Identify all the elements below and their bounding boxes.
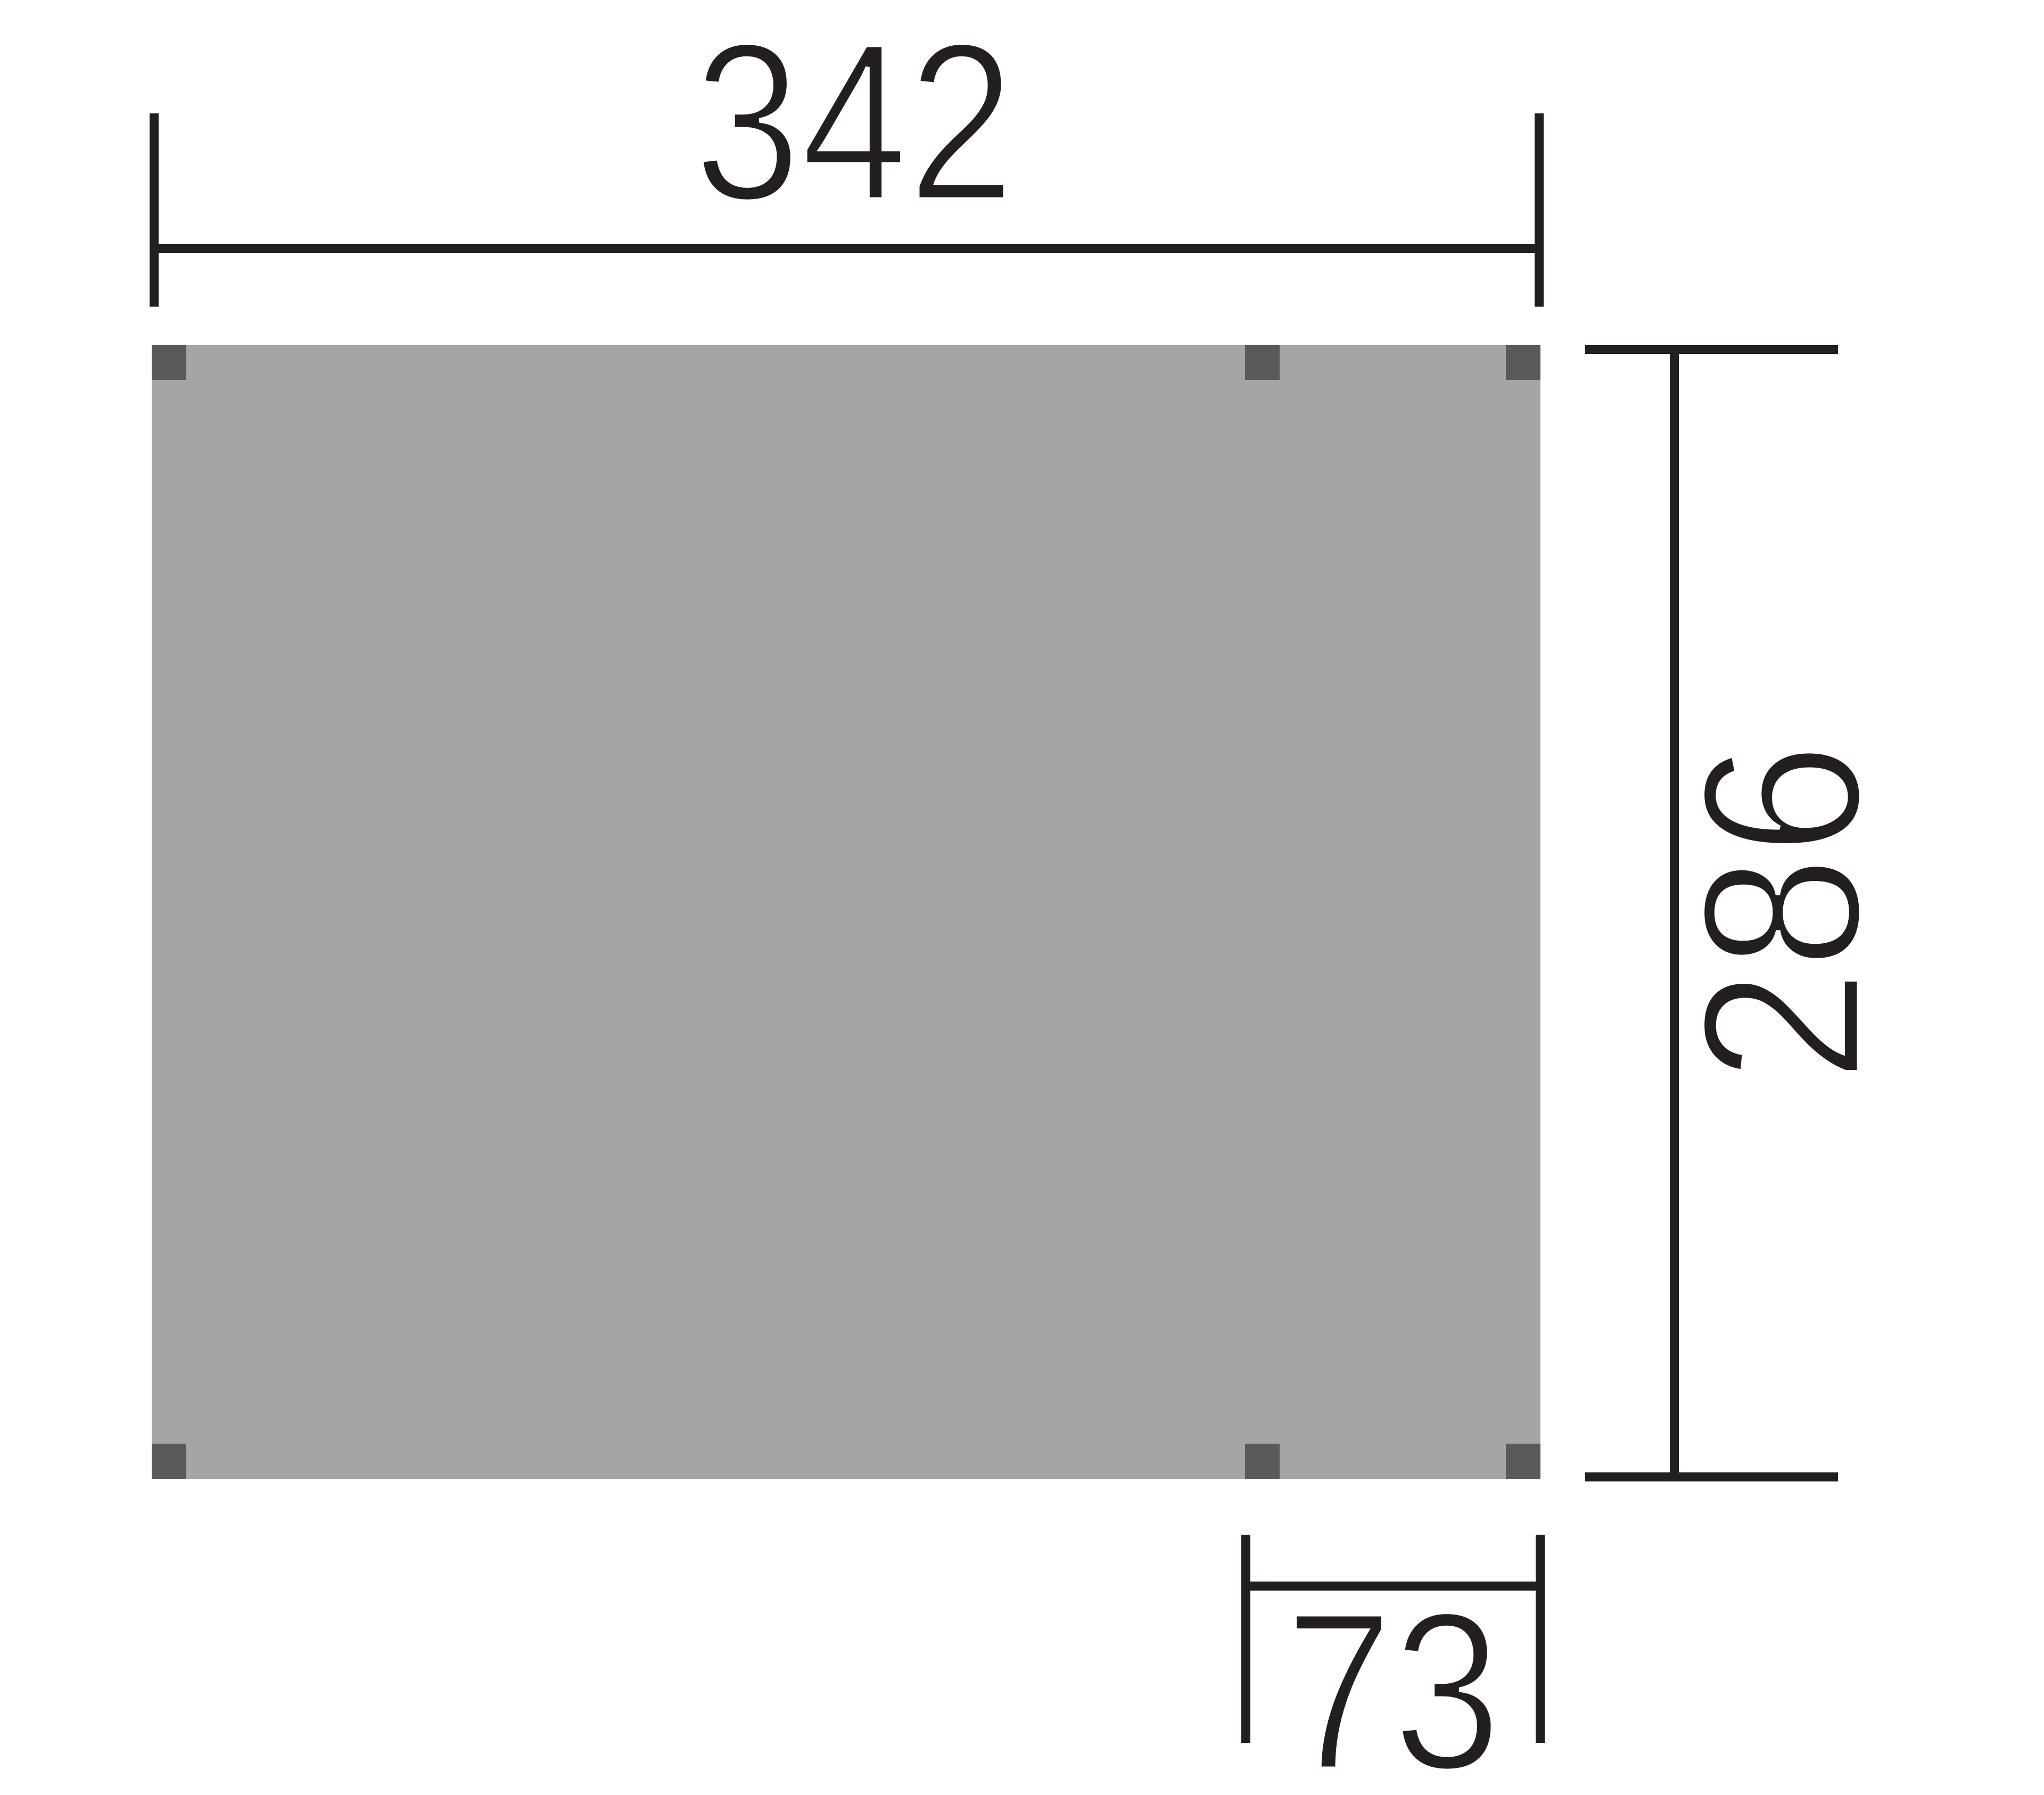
svg-text:73: 73: [1285, 1565, 1502, 1795]
svg-text:342: 342: [694, 0, 1015, 248]
svg-text:286: 286: [1655, 743, 1907, 1083]
